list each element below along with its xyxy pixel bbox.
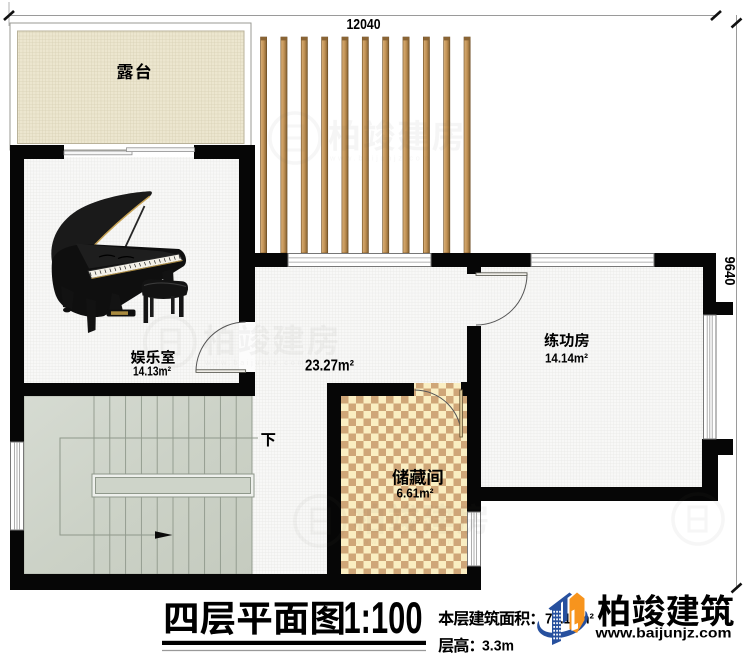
- svg-text:6.61m²: 6.61m²: [397, 486, 434, 500]
- svg-text:9640: 9640: [721, 257, 737, 286]
- svg-text:23.27m²: 23.27m²: [305, 358, 354, 375]
- svg-text:14.14m²: 14.14m²: [545, 350, 589, 365]
- svg-text:3.3m: 3.3m: [482, 639, 514, 655]
- svg-text:www.baijunjz.com: www.baijunjz.com: [594, 626, 731, 641]
- svg-text:1:100: 1:100: [344, 594, 423, 643]
- svg-text:12040: 12040: [347, 17, 381, 33]
- svg-text:www.baijunjz.com: www.baijunjz.com: [329, 154, 431, 163]
- svg-text:www.baijunjz.com: www.baijunjz.com: [354, 537, 456, 546]
- svg-text:www.baijunjz.com: www.baijunjz.com: [204, 358, 306, 367]
